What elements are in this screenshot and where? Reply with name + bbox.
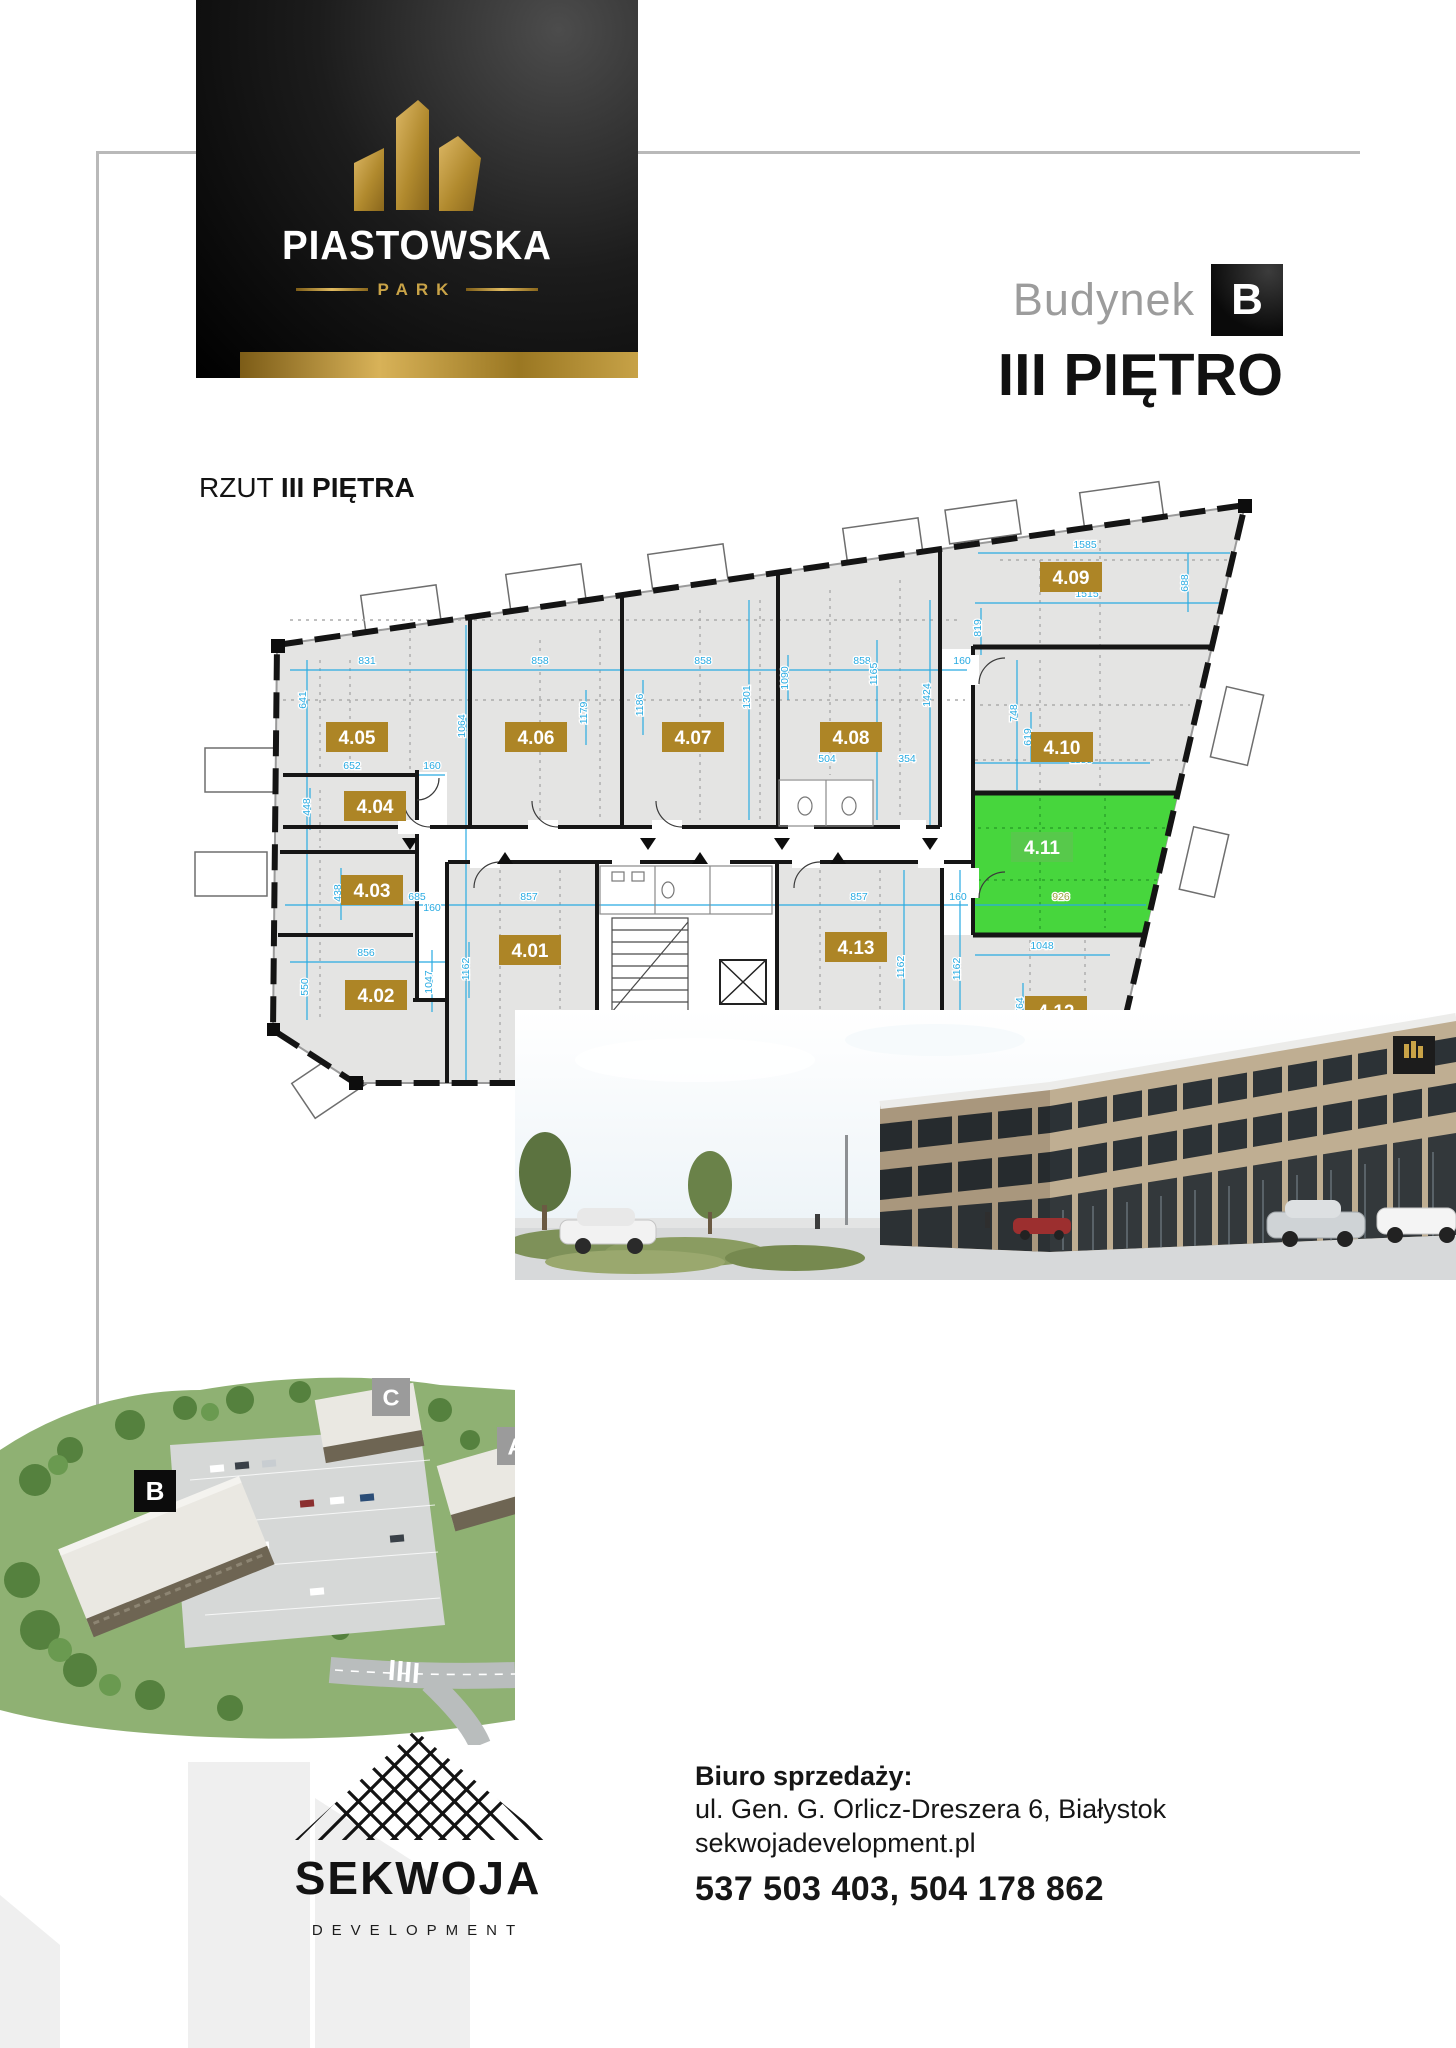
dimension-label: 160 xyxy=(423,902,441,914)
phone-numbers: 537 503 403, 504 178 862 xyxy=(695,1868,1335,1910)
unit-badge-4.08: 4.08 xyxy=(820,722,882,752)
dimension-label: 1186 xyxy=(634,694,646,717)
aerial-label-C: C xyxy=(372,1378,410,1416)
svg-text:4.08: 4.08 xyxy=(833,728,870,749)
dimension-label: 1047 xyxy=(423,970,435,994)
brand-subtitle: PARK xyxy=(196,280,638,300)
footer-brand-subtitle: DEVELOPMENT xyxy=(262,1922,574,1939)
dimension-label: 1424 xyxy=(921,683,933,707)
dimension-label: 688 xyxy=(1179,574,1191,592)
brand-towers-icon xyxy=(196,0,638,220)
svg-text:4.07: 4.07 xyxy=(675,728,712,749)
unit-badge-4.07: 4.07 xyxy=(662,722,724,752)
building-photo-render xyxy=(515,890,1456,1280)
sales-office-contact: Biuro sprzedaży: ul. Gen. G. Orlicz-Dres… xyxy=(695,1760,1335,1911)
dimension-label: 858 xyxy=(694,655,712,667)
dimension-label: 1162 xyxy=(460,958,472,981)
dimension-label: 160 xyxy=(953,655,971,667)
svg-text:A: A xyxy=(507,1433,515,1459)
svg-text:4.11: 4.11 xyxy=(1024,838,1060,859)
svg-text:4.10: 4.10 xyxy=(1044,738,1081,759)
svg-text:4.06: 4.06 xyxy=(518,728,555,749)
website: sekwojadevelopment.pl xyxy=(695,1827,1335,1860)
unit-badge-4.02: 4.02 xyxy=(345,980,407,1010)
building-letter-badge: B xyxy=(1211,264,1283,336)
svg-text:4.04: 4.04 xyxy=(357,797,394,818)
svg-text:4.03: 4.03 xyxy=(354,881,391,902)
building-label: Budynek xyxy=(1013,274,1195,326)
sales-office-address: ul. Gen. G. Orlicz-Dreszera 6, Białystok xyxy=(695,1793,1335,1826)
svg-text:4.09: 4.09 xyxy=(1053,568,1090,589)
brochure-page: PIASTOWSKA PARK Budynek B III PIĘTRO RZU… xyxy=(0,0,1456,2048)
frame-line-left xyxy=(96,151,99,1441)
aerial-label-B: B xyxy=(134,1470,176,1512)
dimension-label: 858 xyxy=(531,655,549,667)
dimension-label: 1064 xyxy=(456,714,468,738)
unit-badge-4.10: 4.10 xyxy=(1031,732,1093,762)
svg-text:C: C xyxy=(382,1384,399,1410)
svg-text:4.02: 4.02 xyxy=(358,986,395,1007)
dimension-label: 641 xyxy=(297,691,309,709)
svg-text:B: B xyxy=(146,1476,165,1506)
dimension-label: 1165 xyxy=(868,663,880,686)
unit-badge-4.06: 4.06 xyxy=(505,722,567,752)
dimension-label: 1090 xyxy=(779,666,791,690)
dimension-label: 1585 xyxy=(1073,539,1097,551)
dimension-label: 748 xyxy=(1008,704,1020,722)
dimension-label: 1301 xyxy=(741,685,753,709)
unit-badge-4.03: 4.03 xyxy=(341,875,403,905)
aerial-site-render: BCA xyxy=(0,1330,515,1745)
svg-text:4.05: 4.05 xyxy=(339,728,376,749)
dimension-label: 448 xyxy=(301,798,313,816)
floor-title: III PIĘTRO xyxy=(998,341,1283,409)
footer-brand-name: SEKWOJA xyxy=(262,1851,574,1905)
dimension-label: 550 xyxy=(299,978,311,996)
brand-card: PIASTOWSKA PARK xyxy=(196,0,638,378)
aerial-label-A: A xyxy=(497,1427,515,1465)
dimension-label: 652 xyxy=(343,760,361,772)
dimension-label: 819 xyxy=(972,619,984,637)
sales-office-label: Biuro sprzedaży: xyxy=(695,1760,1335,1793)
unit-badge-4.11: 4.11 xyxy=(1011,832,1073,862)
dimension-label: 504 xyxy=(818,753,836,765)
brand-gold-bar xyxy=(240,352,638,378)
unit-badge-4.09: 4.09 xyxy=(1040,562,1102,592)
dimension-label: 856 xyxy=(357,947,375,959)
dimension-label: 831 xyxy=(358,655,376,667)
dimension-label: 1179 xyxy=(578,702,590,725)
dimension-label: 160 xyxy=(423,760,441,772)
building-heading: Budynek B xyxy=(1013,264,1283,336)
unit-badge-4.04: 4.04 xyxy=(344,791,406,821)
brand-name: PIASTOWSKA xyxy=(209,222,624,269)
sekwoja-logo-icon xyxy=(285,1722,565,1844)
unit-badge-4.05: 4.05 xyxy=(326,722,388,752)
dimension-label: 354 xyxy=(898,753,916,765)
